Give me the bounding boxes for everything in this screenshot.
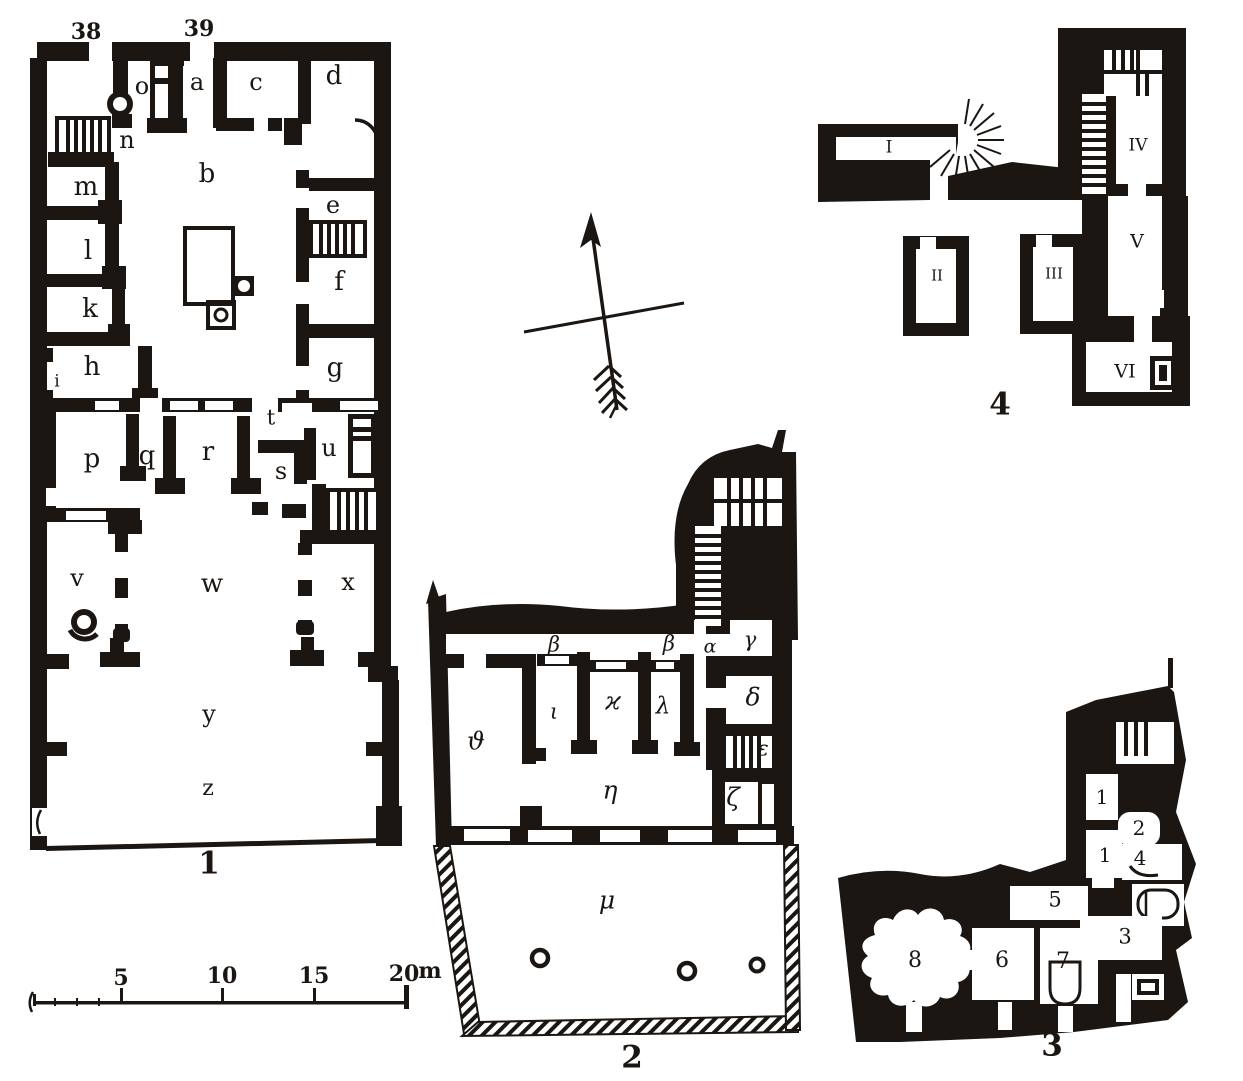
north-arrow-icon bbox=[524, 212, 684, 418]
scale-tick-15: 15 bbox=[299, 965, 330, 987]
plan1-room-e: e bbox=[326, 193, 340, 217]
plan2-room-epsilon: ε bbox=[757, 739, 768, 760]
plan2-room-zeta: ζ bbox=[726, 785, 740, 810]
plan1-room-g: g bbox=[327, 355, 344, 381]
plan1-room-n: n bbox=[119, 128, 134, 152]
plan2-room-lambda: λ bbox=[656, 696, 671, 719]
scale-tick-20: 20 bbox=[389, 963, 420, 985]
plan1-entrance-39: 39 bbox=[184, 18, 215, 40]
plan3-room-5: 5 bbox=[1048, 890, 1061, 911]
plan3-room-1a: 1 bbox=[1096, 787, 1109, 807]
plan1-room-y: y bbox=[202, 702, 216, 726]
scale-unit: m bbox=[418, 960, 441, 982]
plan1-room-v: v bbox=[70, 566, 84, 590]
plan4-room-iii: III bbox=[1045, 267, 1063, 282]
plan3-room-3: 3 bbox=[1118, 927, 1131, 948]
plan4-room-vi: VI bbox=[1114, 363, 1135, 382]
floor-plan-figure: 38 39 o a c d n b m e l f k h i g p q r … bbox=[0, 0, 1243, 1081]
plan3-room-4: 4 bbox=[1134, 848, 1147, 868]
plan1-room-r: r bbox=[202, 439, 214, 465]
plan1-room-m: m bbox=[74, 174, 99, 200]
plan4-room-ii: II bbox=[931, 269, 943, 284]
floor-plan-drawing bbox=[0, 0, 1243, 1081]
plan1-room-u: u bbox=[321, 436, 336, 460]
plan2-room-gamma: γ bbox=[744, 630, 757, 651]
plan2-room-mu: μ bbox=[599, 888, 615, 913]
plan1-room-o: o bbox=[135, 74, 149, 98]
plan2-room-alpha: α bbox=[704, 638, 717, 657]
plan1-room-q: q bbox=[139, 443, 156, 469]
scale-tick-10: 10 bbox=[207, 965, 238, 987]
plan1-room-h: h bbox=[84, 354, 101, 380]
plan2-room-iota: ι bbox=[550, 702, 558, 723]
plan3-room-2: 2 bbox=[1133, 818, 1146, 838]
plan3-room-6: 6 bbox=[995, 950, 1009, 972]
plan2-room-beta-b: β bbox=[663, 634, 675, 655]
plan1-room-p: p bbox=[84, 446, 101, 472]
plan1-room-s: s bbox=[275, 459, 287, 483]
plan-4-walls bbox=[818, 28, 1190, 406]
plan3-room-8: 8 bbox=[908, 950, 922, 972]
plan1-number: 1 bbox=[198, 849, 220, 880]
plan1-entrance-38: 38 bbox=[71, 21, 102, 43]
plan1-room-z: z bbox=[202, 778, 214, 800]
plan1-room-t: t bbox=[267, 408, 275, 429]
plan1-room-l: l bbox=[84, 238, 92, 264]
plan3-number: 3 bbox=[1041, 1031, 1063, 1062]
plan2-room-beta-a: β bbox=[548, 635, 560, 656]
plan1-room-a: a bbox=[190, 70, 204, 94]
plan2-room-kappa: ϰ bbox=[605, 689, 621, 714]
plan1-room-i: i bbox=[54, 374, 59, 391]
plan1-room-w: w bbox=[201, 571, 223, 597]
plan2-room-eta: η bbox=[603, 778, 618, 803]
plan1-room-x: x bbox=[341, 570, 355, 594]
plan1-room-b: b bbox=[199, 161, 216, 187]
plan4-number: 4 bbox=[989, 390, 1011, 421]
plan4-room-iv: IV bbox=[1129, 138, 1148, 155]
scale-tick-5: 5 bbox=[113, 967, 128, 989]
plan4-room-v: V bbox=[1130, 233, 1144, 252]
plan1-room-d: d bbox=[326, 63, 343, 89]
plan2-room-theta: ϑ bbox=[467, 729, 485, 754]
plan1-room-c: c bbox=[249, 70, 262, 94]
plan3-room-7: 7 bbox=[1056, 951, 1070, 973]
plan3-room-1b: 1 bbox=[1099, 845, 1112, 865]
plan1-room-k: k bbox=[82, 296, 98, 322]
plan2-room-delta: δ bbox=[745, 685, 760, 710]
scale-bar bbox=[30, 985, 409, 1012]
plan1-room-f: f bbox=[334, 269, 344, 295]
plan2-number: 2 bbox=[621, 1043, 643, 1074]
plan4-room-i: I bbox=[886, 140, 893, 157]
